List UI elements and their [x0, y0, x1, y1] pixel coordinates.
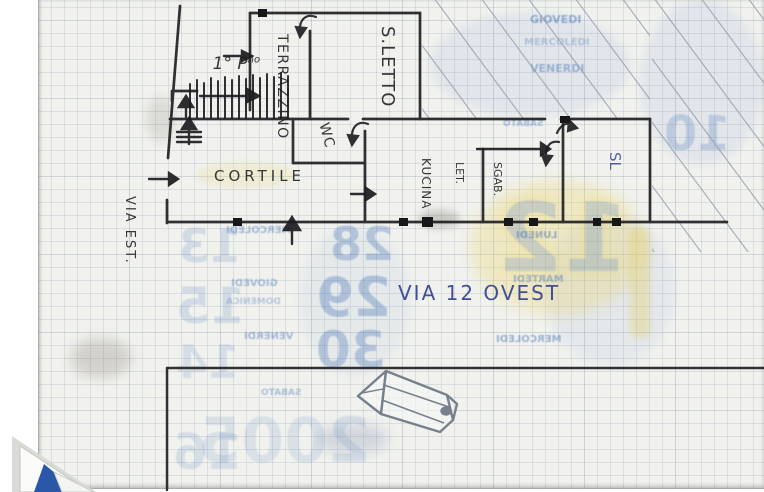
street-label-via-12-ovest: VIA 12 OVEST [398, 281, 560, 305]
area-label-cortile: CORTILE [214, 167, 305, 185]
floor-label: 1° Pno [191, 34, 260, 94]
room-label-sgab-line2: LET. [452, 162, 465, 196]
floor-label-text: 1° P [213, 54, 248, 74]
room-label-sl: SL [606, 152, 624, 170]
room-label-sgab-line1: SGAB. [490, 162, 503, 196]
pencil-icon [358, 371, 457, 432]
room-label-sletto: S.LETTO [377, 26, 398, 107]
page-curl [12, 436, 96, 492]
lower-block-outline [167, 368, 764, 490]
room-label-terrazzino: TERRAZZINO [274, 34, 290, 140]
floor-label-sup: no [248, 54, 260, 65]
room-label-sgab: SGAB. LET. [427, 162, 528, 196]
scanned-floor-plan: GIOVEDIMERCOLEDIVENERDISABATOLUNEDIMARTE… [0, 0, 764, 492]
door-swings [296, 16, 577, 165]
street-label-via-est: VIA EST. [122, 196, 137, 265]
